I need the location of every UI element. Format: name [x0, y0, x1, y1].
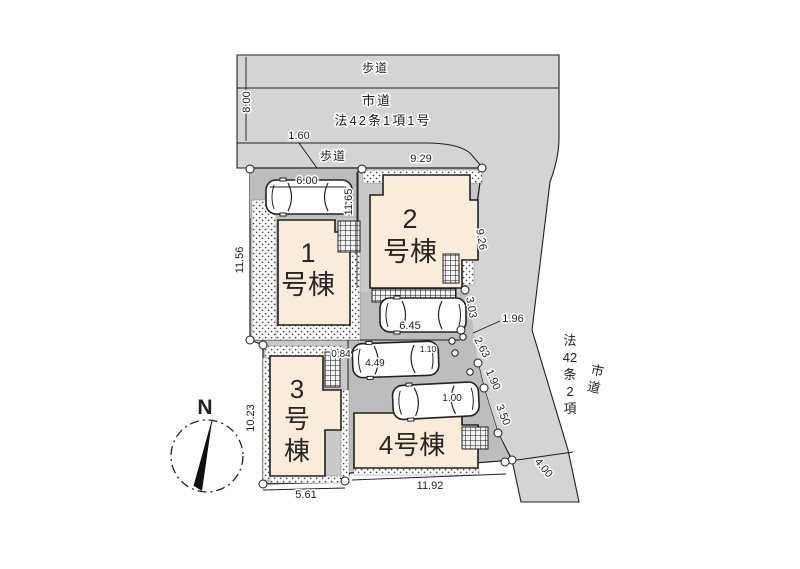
svg-text:42: 42 [563, 350, 577, 365]
svg-text:2: 2 [566, 384, 573, 399]
stipple-area [252, 200, 276, 340]
svg-text:2: 2 [402, 204, 417, 234]
svg-text:号棟: 号棟 [281, 270, 335, 300]
dim-diag-leader: 1.96 [502, 313, 523, 325]
svg-text:1: 1 [300, 238, 315, 268]
top-road-name: 市道 [362, 93, 392, 108]
dim-frontage-top: 9.29 [410, 153, 431, 165]
building-2 [370, 175, 478, 288]
right-road-name-label: 市 道 [586, 362, 605, 396]
porch-grid [462, 427, 488, 449]
svg-text:市: 市 [589, 362, 605, 379]
site-plan-page: 歩道 市道 法42条1項1号 歩道 法 42 条 2 項 市 道 1 号棟 2 … [0, 0, 800, 569]
dim-mid-c: 1.10 [420, 344, 437, 354]
stipple-area [341, 390, 349, 480]
site-plan-svg: 歩道 市道 法42条1項1号 歩道 法 42 条 2 項 市 道 1 号棟 2 … [0, 0, 800, 569]
building-4-label: 4号棟 [379, 430, 445, 460]
dim-depth-center: 11.65 [343, 189, 355, 216]
dim-car-a: 6.00 [296, 175, 317, 187]
top-road-law: 法42条1項1号 [335, 113, 432, 128]
svg-text:4号棟: 4号棟 [379, 430, 445, 460]
svg-text:号棟: 号棟 [383, 237, 437, 267]
svg-text:道: 道 [586, 379, 602, 396]
car-icon [392, 380, 480, 422]
svg-text:法: 法 [563, 333, 576, 348]
dim-depth-left: 11.56 [234, 247, 246, 274]
stipple-area [276, 325, 352, 340]
dim-mid-a: 0.84 [331, 349, 351, 360]
svg-text:号: 号 [284, 404, 310, 434]
car-icon [380, 296, 466, 334]
top-sidewalk-label: 歩道 [362, 60, 388, 75]
svg-text:項: 項 [563, 401, 576, 416]
dim-depth-left-lower: 10.23 [245, 404, 257, 432]
lower-sidewalk-label: 歩道 [320, 148, 346, 163]
dim-sidewalk-offset: 1.60 [288, 130, 309, 142]
right-road-law-label: 法 42 条 2 項 [563, 333, 577, 416]
svg-text:3: 3 [290, 374, 304, 404]
dim-mid-b: 4.49 [365, 358, 385, 369]
compass-n-label: N [197, 396, 212, 419]
dim-plot3-width: 5.61 [295, 489, 316, 501]
dim-car-b: 6.45 [399, 320, 420, 332]
dim-car-d: 1.00 [442, 393, 462, 404]
north-compass: N [171, 396, 243, 492]
stipple-area [270, 476, 343, 483]
dim-road-top-width: 8.00 [241, 91, 253, 112]
stipple-area [354, 468, 479, 475]
svg-text:棟: 棟 [284, 436, 310, 466]
dim-plot4-width: 11.92 [417, 480, 444, 492]
svg-text:条: 条 [563, 367, 576, 382]
porch-grid [443, 254, 459, 283]
